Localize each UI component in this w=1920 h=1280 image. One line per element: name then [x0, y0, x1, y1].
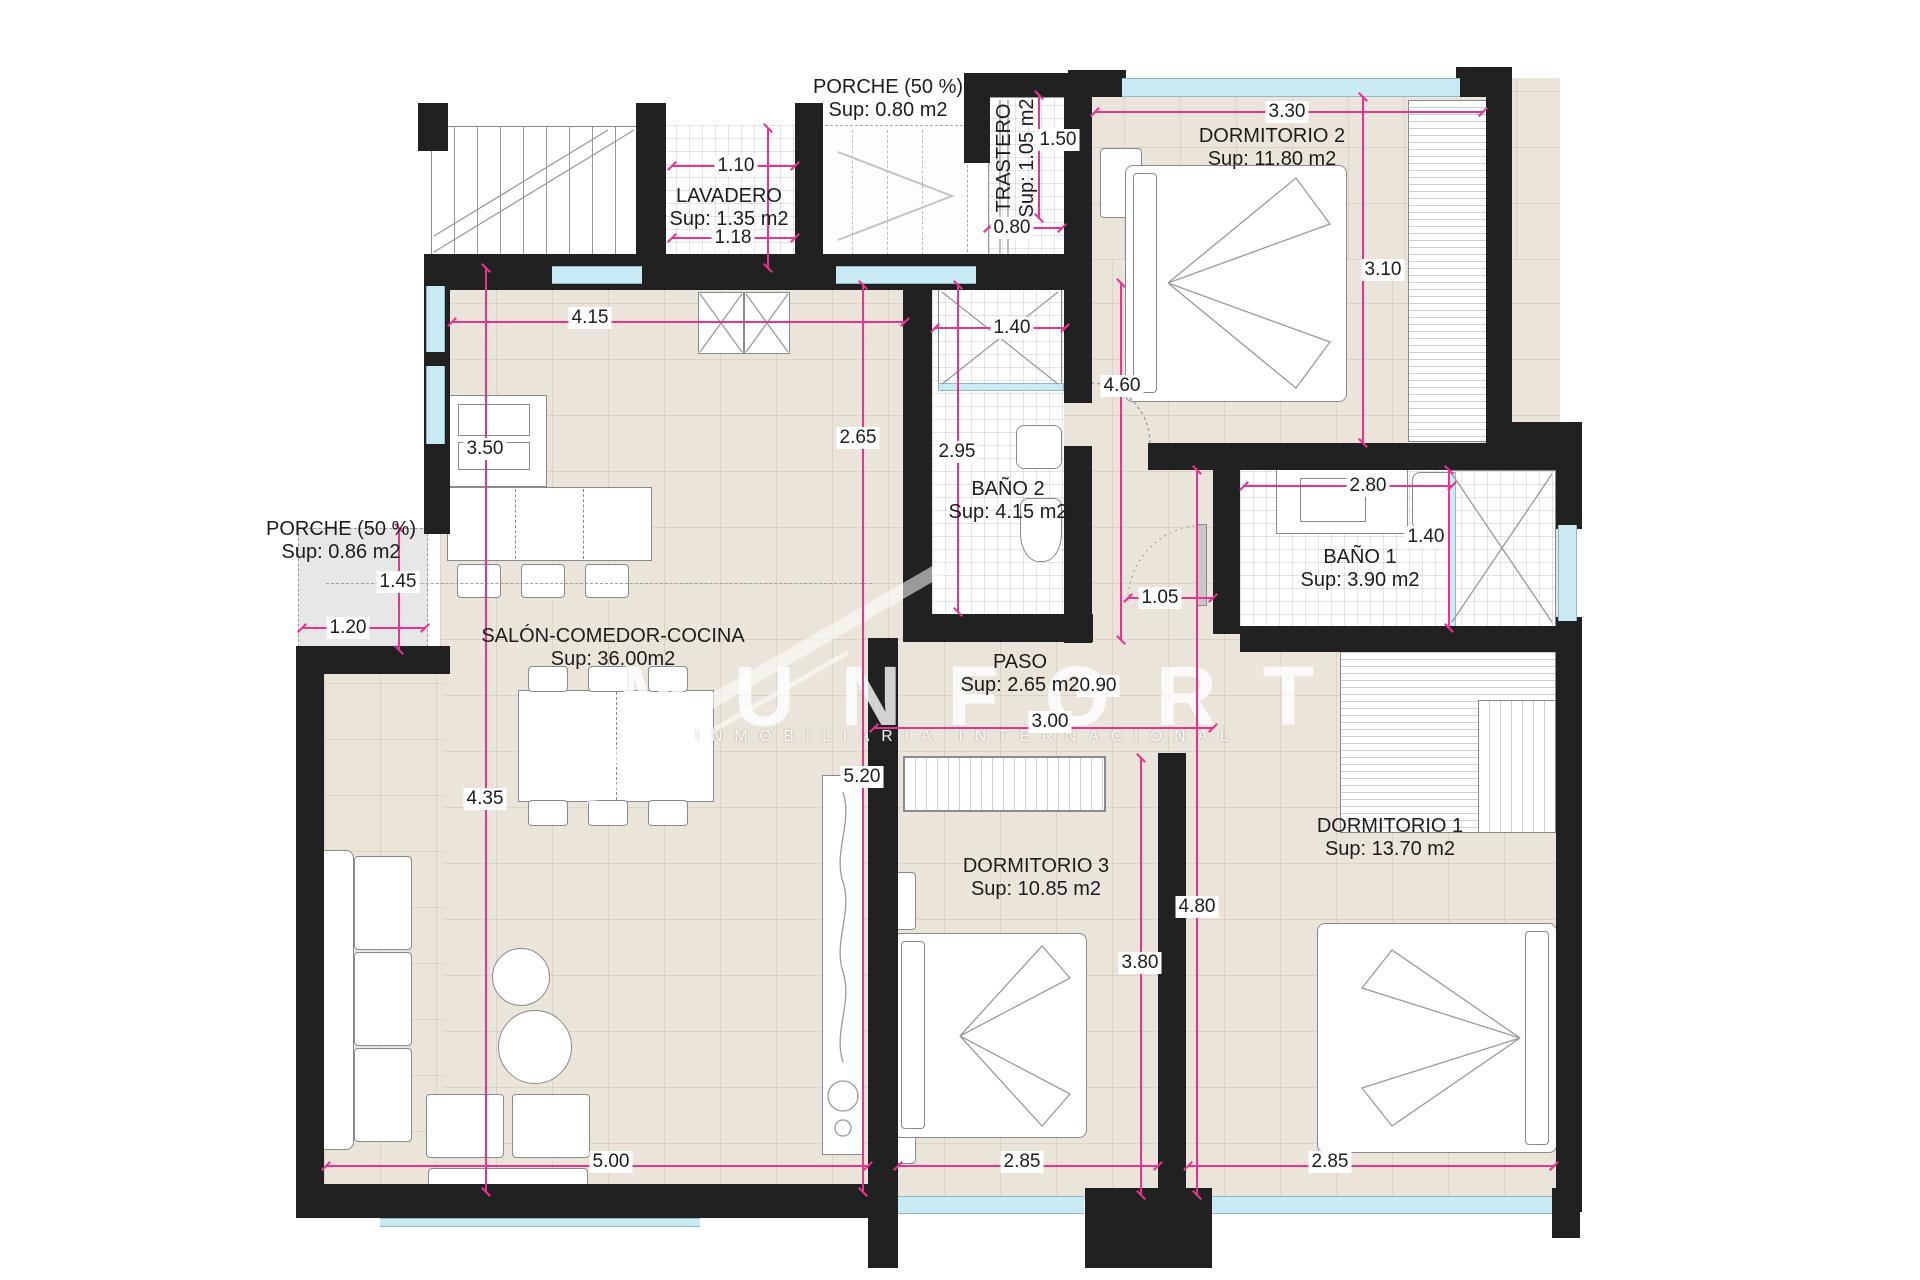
watermark-tagline: INMOBILIARIA INTERNACIONAL	[695, 728, 1240, 746]
chair	[528, 800, 568, 826]
dimension-label: 2.95	[936, 441, 979, 463]
dimension-label: 1.40	[991, 317, 1034, 339]
wall	[1148, 443, 1213, 470]
floor-porche-top	[820, 125, 968, 267]
room-area: Sup: 10.85 m2	[963, 878, 1109, 901]
sofa-cushion	[354, 1048, 412, 1142]
dimension-line	[1196, 470, 1198, 1195]
island-divider	[515, 489, 516, 559]
dimension-label: 4.15	[569, 307, 612, 329]
wall	[868, 1220, 898, 1268]
room-name: DORMITORIO 1	[1317, 815, 1463, 838]
sink-bano-2	[1016, 425, 1062, 469]
sofa-cushion	[354, 856, 412, 950]
wall	[1068, 70, 1126, 97]
room-name: DORMITORIO 3	[963, 855, 1109, 878]
closet-dormitorio-3	[903, 756, 1106, 812]
wall	[1556, 445, 1582, 529]
sofa-cushion	[354, 952, 412, 1046]
chair	[648, 800, 688, 826]
window	[426, 286, 445, 352]
porche-guide	[922, 130, 923, 260]
room-area: Sup: 11.80 m2	[1199, 148, 1345, 171]
window	[552, 266, 642, 284]
room-label-lavadero: LAVADERO Sup: 1.35 m2	[670, 185, 789, 231]
window	[1558, 525, 1577, 621]
room-label-porche-left: PORCHE (50 %) Sup: 0.86 m2	[266, 518, 416, 564]
dimension-label: 3.00	[1029, 711, 1072, 733]
dimension-label: 4.60	[1101, 375, 1144, 397]
wardrobe-step	[1478, 700, 1556, 833]
island-divider	[583, 489, 584, 559]
chair	[588, 800, 628, 826]
porche-guide	[852, 130, 853, 260]
room-area: Sup: 1.35 m2	[670, 208, 789, 231]
dimension-line	[1120, 283, 1122, 640]
dimension-label: 0.80	[991, 217, 1034, 239]
floor-plan: MUNFORT INMOBILIARIA INTERNACIONAL 1.10 …	[0, 0, 1920, 1280]
dimension-line	[1188, 1165, 1554, 1167]
porche-guide	[887, 130, 888, 260]
room-name: DORMITORIO 2	[1199, 125, 1345, 148]
room-label-dormitorio-2: DORMITORIO 2 Sup: 11.80 m2	[1199, 125, 1345, 171]
room-area: Sup: 13.70 m2	[1317, 838, 1463, 861]
washer-box	[744, 292, 790, 354]
dimension-label: 3.10	[1362, 259, 1405, 281]
room-name: PORCHE (50 %)	[266, 518, 416, 541]
wall	[1556, 617, 1582, 1212]
dimension-label: 2.85	[1001, 1151, 1044, 1173]
room-area: Sup: 3.90 m2	[1301, 569, 1420, 592]
wall	[418, 103, 448, 151]
room-label-dormitorio-3: DORMITORIO 3 Sup: 10.85 m2	[963, 855, 1109, 901]
window	[898, 1196, 1084, 1214]
dimension-label: 3.50	[464, 438, 507, 460]
window	[1212, 1196, 1552, 1214]
room-name: PORCHE (50 %)	[813, 76, 963, 99]
room-area: Sup: 4.15 m2	[949, 501, 1068, 524]
room-name: BAÑO 1	[1301, 546, 1420, 569]
wall	[903, 614, 1093, 642]
kitchen-island	[447, 487, 652, 561]
window	[1122, 78, 1460, 97]
dimension-label: 2.65	[837, 427, 880, 449]
armchair	[512, 1094, 590, 1158]
dimension-label: 2.80	[1347, 475, 1390, 497]
room-label-porche-top: PORCHE (50 %) Sup: 0.80 m2	[813, 76, 963, 122]
dimension-label: 5.00	[590, 1151, 633, 1173]
wall	[636, 103, 666, 263]
kitchen-sink	[458, 404, 530, 436]
dimension-label: 4.35	[464, 788, 507, 810]
bed-dormitorio-1	[1317, 923, 1557, 1153]
room-label-dormitorio-1: DORMITORIO 1 Sup: 13.70 m2	[1317, 815, 1463, 861]
room-label-salon: SALÓN-COMEDOR-COCINA Sup: 36.00m2	[481, 625, 744, 671]
room-name: PASO	[961, 651, 1080, 674]
stool	[585, 564, 629, 598]
dimension-label: 1.10	[715, 155, 758, 177]
pouf-round	[492, 948, 550, 1006]
cabinet-column	[822, 775, 864, 1155]
wall	[296, 1184, 884, 1218]
wall	[1064, 73, 1092, 403]
room-label-paso: PASO Sup: 2.65 m2	[961, 651, 1080, 697]
shower-bano-1	[1448, 470, 1556, 628]
room-area: Sup: 1.05 m2	[1016, 99, 1039, 218]
room-label-bano-2: BAÑO 2 Sup: 4.15 m2	[949, 478, 1068, 524]
room-name: LAVADERO	[670, 185, 789, 208]
wall	[1158, 753, 1186, 1200]
dimension-label: 3.30	[1266, 101, 1309, 123]
dimension-label: 0.90	[1077, 675, 1120, 697]
pouf-round	[498, 1010, 572, 1084]
dimension-line	[452, 321, 905, 323]
bed-headboard	[1525, 931, 1549, 1145]
dimension-label: 1.05	[1139, 587, 1182, 609]
room-area: Sup: 0.80 m2	[813, 99, 963, 122]
window	[426, 366, 445, 444]
armchair	[426, 1094, 504, 1158]
room-name: BAÑO 2	[949, 478, 1068, 501]
room-area: Sup: 36.00m2	[481, 648, 744, 671]
room-name: TRASTERO	[993, 99, 1016, 218]
dimension-label: 2.85	[1309, 1151, 1352, 1173]
dimension-label: 3.80	[1119, 952, 1162, 974]
dimension-line	[862, 285, 864, 1192]
stool	[521, 564, 565, 598]
washer-box	[698, 292, 744, 354]
wall	[1552, 1188, 1580, 1238]
bed-headboard	[901, 941, 925, 1129]
stool	[457, 564, 501, 598]
dimension-line	[1448, 470, 1450, 628]
wall	[795, 103, 823, 263]
dimension-label: 5.20	[841, 766, 884, 788]
wall	[296, 646, 324, 1218]
dimension-label: 4.80	[1176, 896, 1219, 918]
dimension-line	[1140, 758, 1142, 1195]
staircase	[431, 126, 637, 256]
room-name: SALÓN-COMEDOR-COCINA	[481, 625, 744, 648]
dimension-line	[485, 268, 487, 1192]
room-label-bano-1: BAÑO 1 Sup: 3.90 m2	[1301, 546, 1420, 592]
dimension-label: 1.40	[1405, 526, 1448, 548]
room-label-trastero: TRASTERO Sup: 1.05 m2	[993, 99, 1039, 218]
bed-dormitorio-2	[1125, 165, 1347, 402]
room-area: Sup: 0.86 m2	[266, 541, 416, 564]
room-area: Sup: 2.65 m2	[961, 674, 1080, 697]
door-leaf	[1197, 524, 1207, 606]
bed-headboard	[1133, 173, 1157, 393]
wall	[1213, 443, 1240, 634]
wall	[1486, 67, 1512, 449]
wall	[964, 73, 990, 163]
dimension-label: 1.20	[327, 617, 370, 639]
dimension-label: 1.50	[1037, 129, 1080, 151]
window	[380, 1218, 700, 1227]
dimension-label: 1.45	[377, 571, 420, 593]
wall	[1085, 1188, 1212, 1268]
wall	[1213, 443, 1558, 470]
